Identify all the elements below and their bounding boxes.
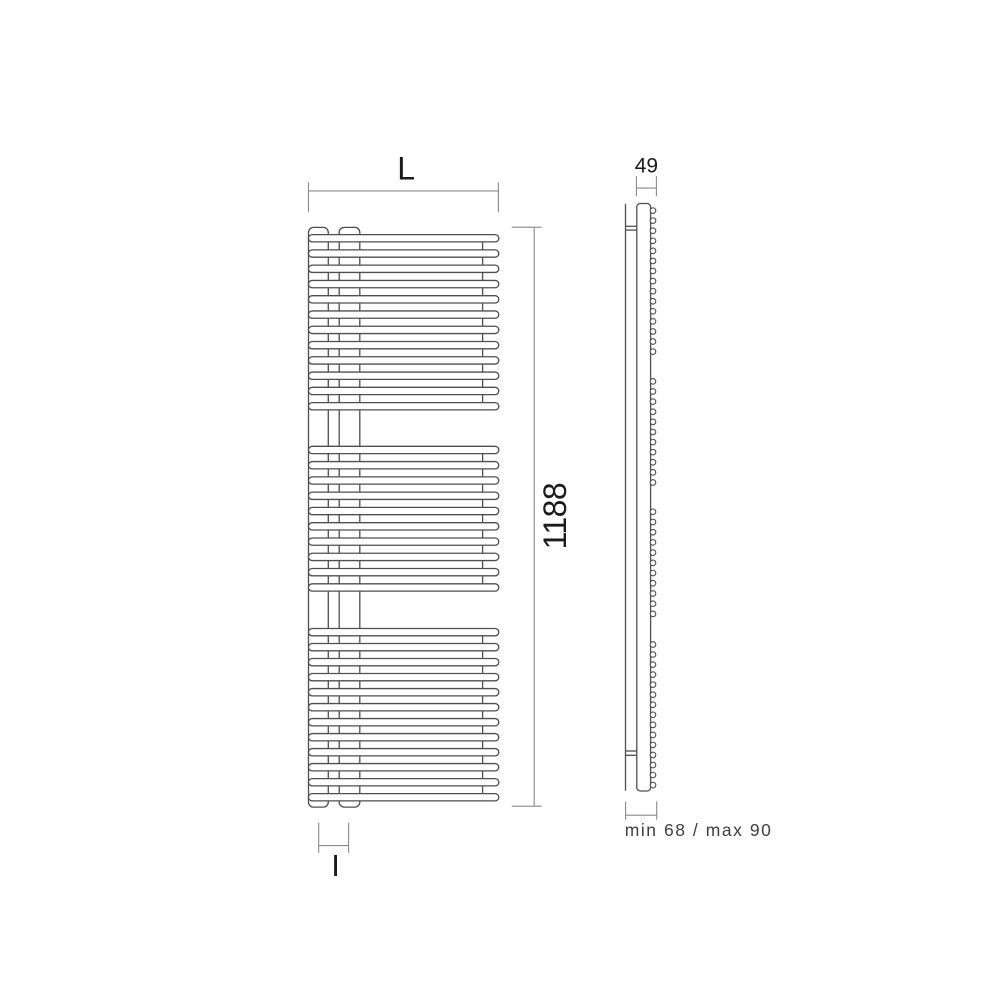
svg-text:L: L <box>397 150 415 186</box>
svg-text:min 68 / max 90: min 68 / max 90 <box>625 820 773 840</box>
svg-text:1188: 1188 <box>537 483 573 549</box>
svg-text:I: I <box>331 848 340 883</box>
svg-text:49: 49 <box>635 154 658 177</box>
